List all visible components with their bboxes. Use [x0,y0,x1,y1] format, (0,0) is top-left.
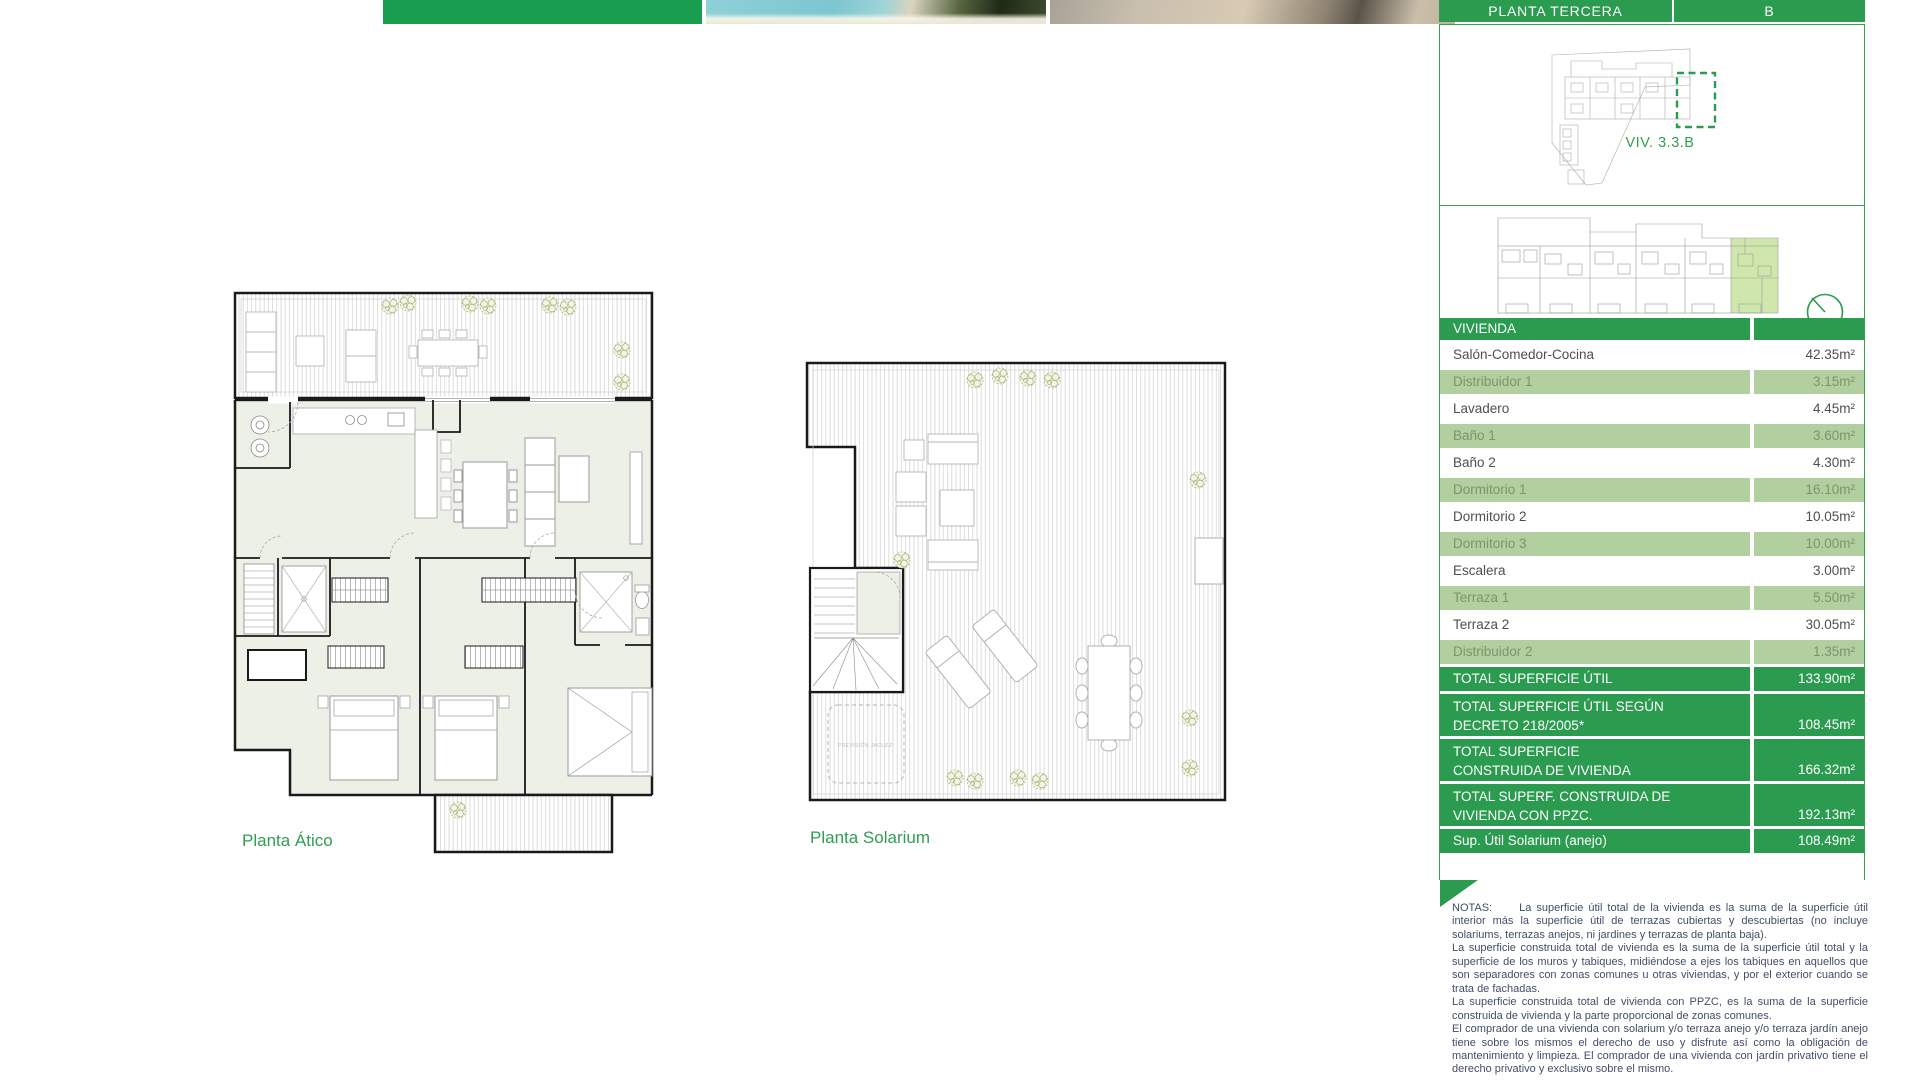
notes-paragraph: El comprador de una vivienda con solariu… [1452,1023,1868,1077]
planta-solarium-label: Planta Solarium [810,828,930,848]
pool-photo-thumbnail [706,0,1046,24]
table-row: Dormitorio 116.10m² [1440,478,1864,502]
info-panel: VIV. 3.3.B [1439,24,1865,880]
panel-header: PLANTA TERCERA B [1439,0,1865,22]
atico-terrace-small [435,795,612,852]
brand-green-strip [383,0,702,24]
table-row: Distribuidor 13.15m² [1440,370,1864,394]
room-label: TOTAL SUPERFICIE CONSTRUIDA DE VIVIENDA [1440,739,1750,781]
room-area: 3.00m² [1754,559,1864,583]
room-label: Terraza 1 [1440,586,1750,610]
notes-block: NOTAS:La superficie útil total de la viv… [1452,902,1868,1077]
table-row: Lavadero4.45m² [1440,397,1864,421]
room-label: TOTAL SUPERF. CONSTRUIDA DE VIVIENDA CON… [1440,784,1750,826]
notes-paragraph: La superficie construida total de vivien… [1452,996,1868,1023]
table-row: Dormitorio 310.00m² [1440,532,1864,556]
solarium-planter [1195,538,1223,584]
room-label: TOTAL SUPERFICIE ÚTIL [1440,667,1750,691]
room-area: 4.30m² [1754,451,1864,475]
notes-label: NOTAS: [1452,902,1492,914]
room-label: Sup. Útil Solarium (anejo) [1440,829,1750,853]
unit-caption: VIV. 3.3.B [1610,135,1710,151]
room-area: 192.13m² [1754,784,1864,826]
table-total-row: VIVIENDA [1440,318,1864,340]
table-row: Baño 13.60m² [1440,424,1864,448]
terrace-photo-thumbnail [1050,0,1455,24]
atico-stairs [244,564,274,634]
table-total-row: TOTAL SUPERFICIE ÚTIL SEGÚN DECRETO 218/… [1440,694,1864,736]
table-row: Distribuidor 21.35m² [1440,640,1864,664]
room-area: 1.35m² [1754,640,1864,664]
room-area: 10.00m² [1754,532,1864,556]
room-area: 3.15m² [1754,370,1864,394]
notes-paragraph: NOTAS:La superficie útil total de la viv… [1452,902,1868,942]
planta-atico-label: Planta Ático [242,831,333,851]
atico-beds [318,688,652,780]
brochure-page: PREVISIÓN JACUZZI [0,0,1920,1080]
notes-paragraph: La superficie construida total de vivien… [1452,942,1868,996]
site-locator: VIV. 3.3.B [1440,25,1864,205]
room-area: 42.35m² [1754,343,1864,367]
table-total-row: Sup. Útil Solarium (anejo)108.49m² [1440,829,1864,853]
room-label: Lavadero [1440,397,1750,421]
table-row: Baño 24.30m² [1440,451,1864,475]
table-row: Escalera3.00m² [1440,559,1864,583]
room-label: Dormitorio 2 [1440,505,1750,529]
room-area: 5.50m² [1754,586,1864,610]
room-area: 108.45m² [1754,694,1864,736]
room-label: TOTAL SUPERFICIE ÚTIL SEGÚN DECRETO 218/… [1440,694,1750,736]
room-label: Dormitorio 3 [1440,532,1750,556]
area-table: VIVIENDASalón-Comedor-Cocina42.35m²Distr… [1440,318,1864,856]
room-label: Dormitorio 1 [1440,478,1750,502]
table-total-row: TOTAL SUPERFICIE ÚTIL133.90m² [1440,667,1864,691]
room-area: 166.32m² [1754,739,1864,781]
room-area [1754,318,1864,340]
planta-atico-drawing [230,290,660,860]
room-area: 30.05m² [1754,613,1864,637]
room-label: Escalera [1440,559,1750,583]
room-label: Terraza 2 [1440,613,1750,637]
svg-text:PREVISIÓN JACUZZI: PREVISIÓN JACUZZI [838,742,894,749]
site-locator-drawing [1440,25,1864,205]
atico-void [248,650,306,680]
room-area: 10.05m² [1754,505,1864,529]
table-row: Salón-Comedor-Cocina42.35m² [1440,343,1864,367]
room-area: 133.90m² [1754,667,1864,691]
floor-title: PLANTA TERCERA [1439,0,1672,22]
table-row: Terraza 15.50m² [1440,586,1864,610]
room-area: 3.60m² [1754,424,1864,448]
solarium-stairs [810,568,903,692]
room-label: Baño 1 [1440,424,1750,448]
room-label: Distribuidor 2 [1440,640,1750,664]
table-row: Terraza 230.05m² [1440,613,1864,637]
atico-bath1 [282,566,326,632]
atico-terrace [235,293,652,398]
room-label: Distribuidor 1 [1440,370,1750,394]
unit-title: B [1674,0,1865,22]
room-area: 16.10m² [1754,478,1864,502]
room-label: Baño 2 [1440,451,1750,475]
table-total-row: TOTAL SUPERF. CONSTRUIDA DE VIVIENDA CON… [1440,784,1864,826]
planta-solarium-drawing: PREVISIÓN JACUZZI [800,350,1250,860]
table-total-row: TOTAL SUPERFICIE CONSTRUIDA DE VIVIENDA1… [1440,739,1864,781]
table-row: Dormitorio 210.05m² [1440,505,1864,529]
room-area: 4.45m² [1754,397,1864,421]
room-area: 108.49m² [1754,829,1864,853]
room-label: VIVIENDA [1440,318,1750,340]
room-label: Salón-Comedor-Cocina [1440,343,1750,367]
